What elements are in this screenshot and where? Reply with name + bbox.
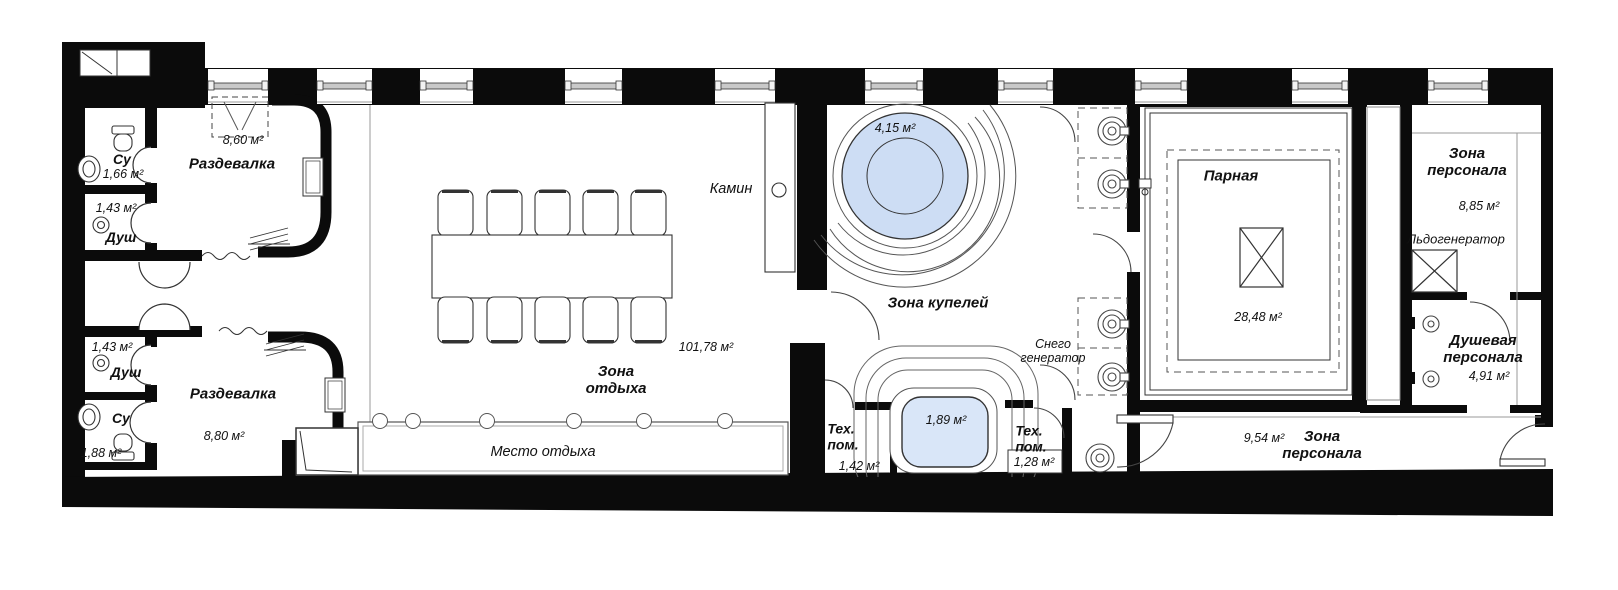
window	[715, 69, 775, 104]
table-and-chairs	[432, 190, 672, 343]
ice-generator-icon	[1412, 250, 1457, 292]
shower-head-icon	[93, 355, 109, 371]
shower-head-icon	[1098, 363, 1129, 391]
window	[420, 69, 473, 104]
toilet-icon	[112, 434, 134, 460]
table	[432, 235, 672, 298]
fireplace-icon	[765, 103, 795, 272]
shower-head-icon	[1409, 371, 1439, 387]
cabinet-icon	[303, 158, 323, 196]
cabinet-icon	[325, 378, 345, 412]
shower-head-icon	[93, 217, 109, 233]
window	[1428, 69, 1488, 104]
shower-head-icon	[1098, 117, 1129, 145]
shower-head-icon	[1098, 170, 1129, 198]
rest-bench	[358, 414, 788, 476]
closet	[296, 428, 358, 475]
window	[1292, 69, 1348, 104]
window	[208, 69, 268, 104]
window	[317, 69, 372, 104]
floor-plan-drawing	[0, 0, 1618, 590]
shower-head-icon	[1098, 310, 1129, 338]
window	[1135, 69, 1187, 104]
chair-row-bottom	[438, 297, 666, 343]
window	[565, 69, 622, 104]
shower-stalls-dashed	[1078, 108, 1127, 395]
stove-icon	[1240, 228, 1283, 287]
steam-room	[1139, 108, 1352, 395]
floor-plan: Су 1,66 м² Раздевалка 8,60 м² 1,43 м² Ду…	[0, 0, 1618, 590]
shelf-box	[1008, 450, 1062, 473]
shower-head-icon	[1409, 316, 1439, 332]
wall-break-icon	[202, 253, 267, 335]
toilet-icon	[112, 126, 134, 151]
shower-head-icon	[1086, 444, 1114, 472]
round-pool	[814, 104, 1016, 287]
sink-icon	[78, 404, 100, 430]
window	[865, 69, 923, 104]
chair-row-top	[438, 190, 666, 236]
sink-icon	[78, 156, 100, 182]
window	[998, 69, 1053, 104]
entry-door	[80, 50, 150, 76]
